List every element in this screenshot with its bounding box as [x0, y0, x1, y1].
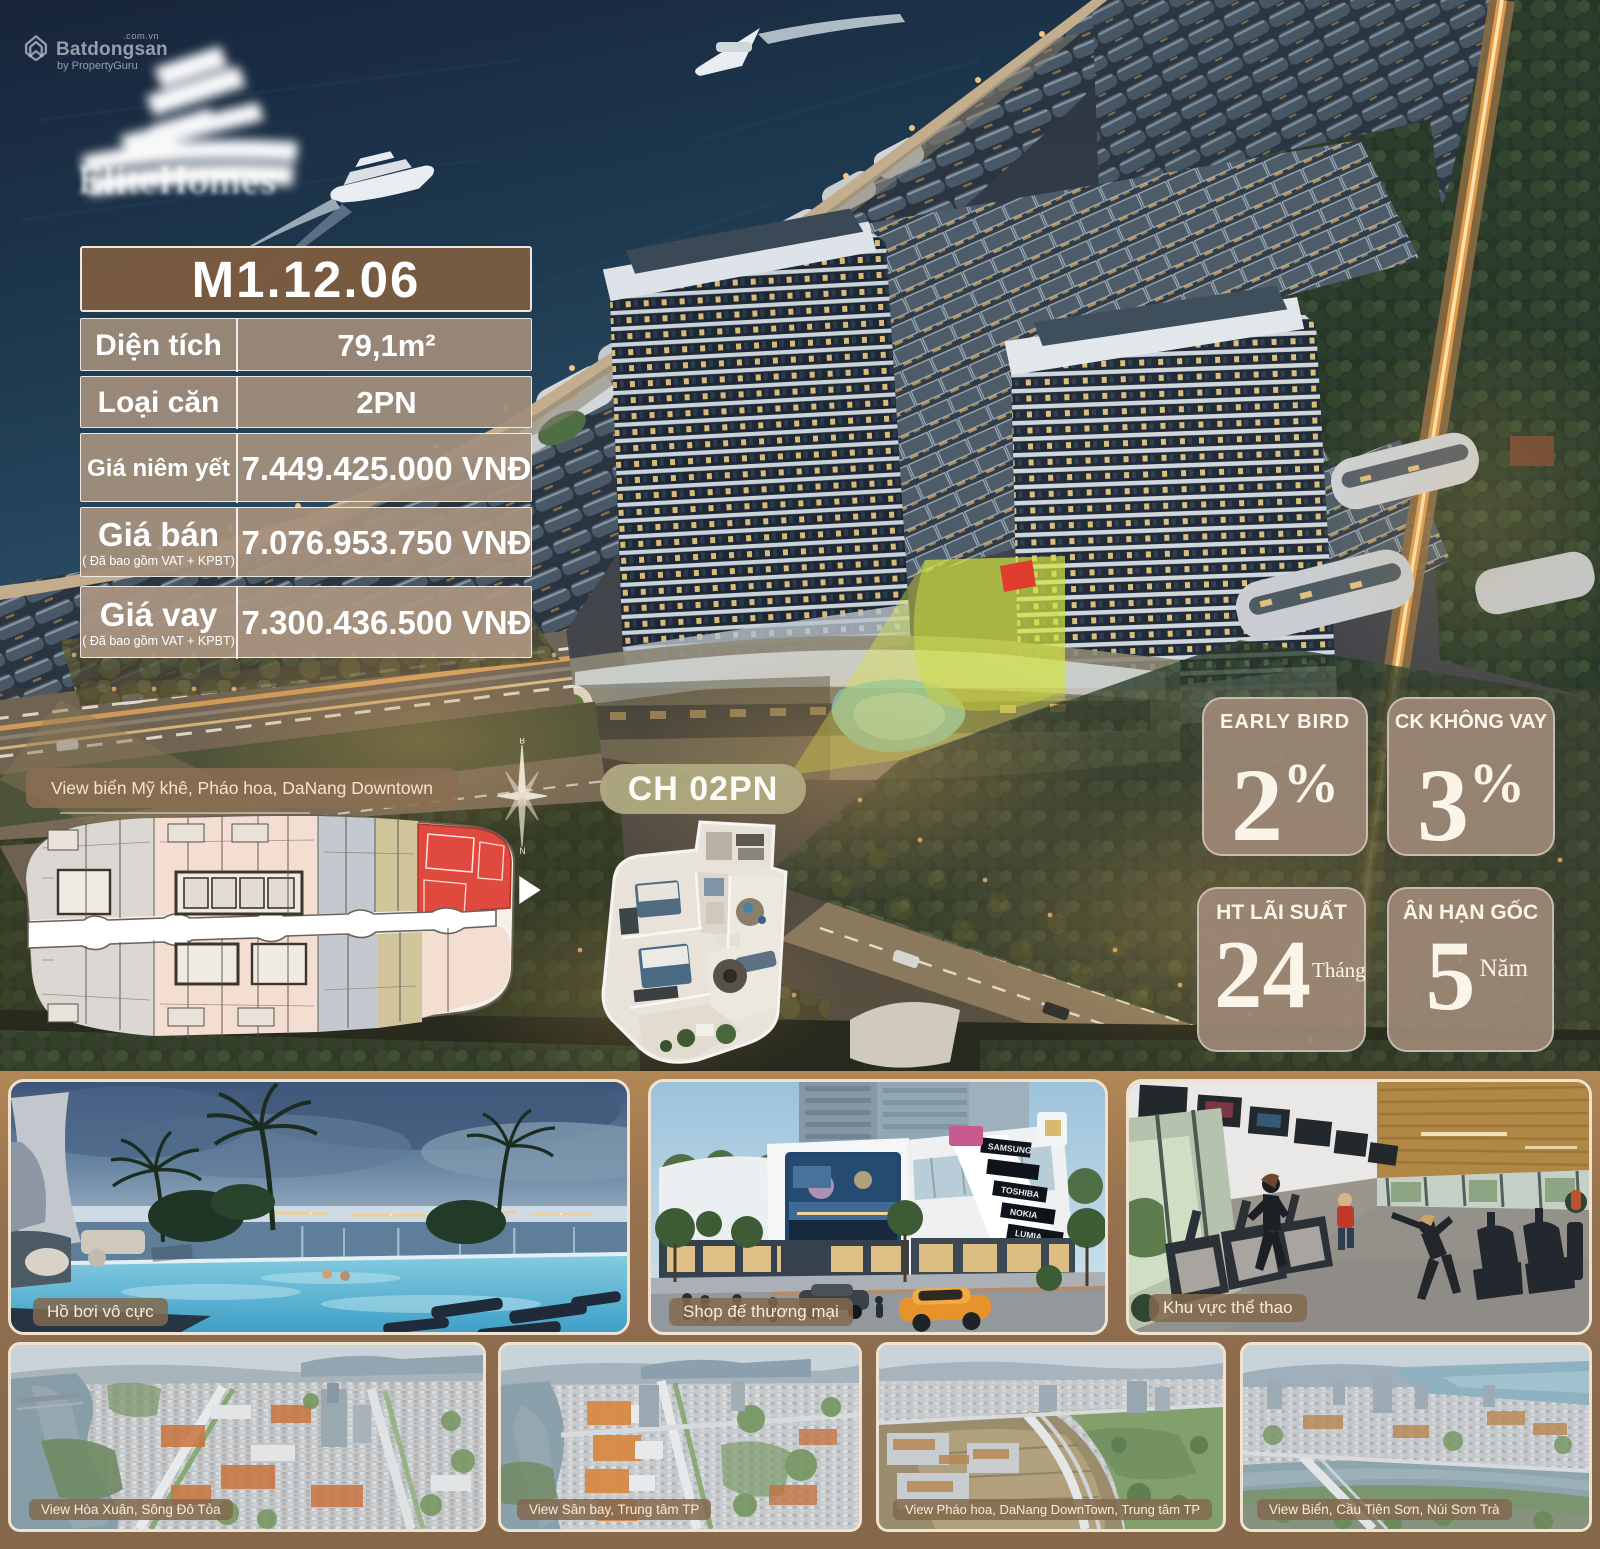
svg-text:B: B [519, 738, 525, 745]
svg-text:N: N [519, 846, 525, 854]
